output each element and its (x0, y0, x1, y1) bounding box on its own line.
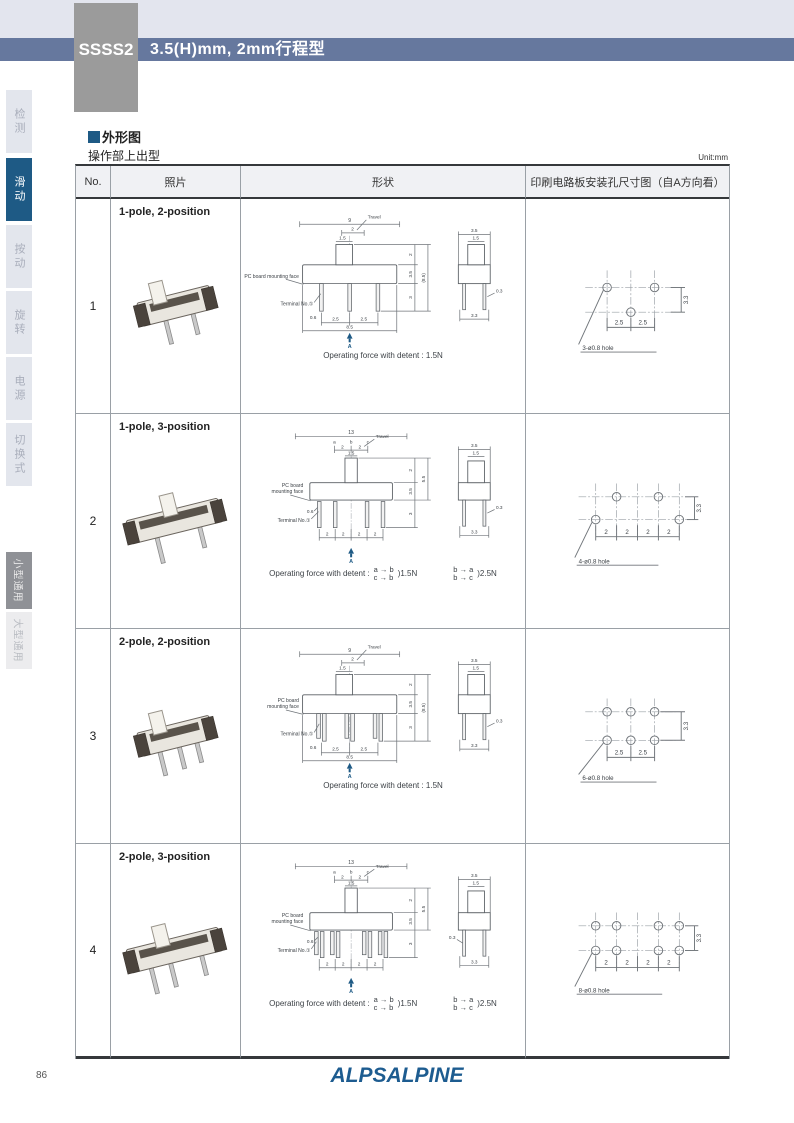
row2-shape-cell: 13 a b c 2 2 Travel 1.5 2 3.5 (241, 414, 526, 629)
row1-photo (121, 260, 231, 365)
dim-pitch2: 2.5 (361, 747, 368, 752)
dim-knob-height: 2 (408, 899, 413, 902)
dim-travel: 2 (351, 227, 354, 232)
model-name: SSSS2 (79, 40, 134, 60)
row2-dimension-drawing: 13 a b c 2 2 Travel 1.5 2 3.5 (241, 426, 525, 564)
row1-operating-force: Operating force with detent : 1.5N (323, 351, 443, 360)
row3-shape-cell: 9 2 Travel 1.5 2 3.5 3 (8.5) 0.6 (241, 629, 526, 844)
row4-type-label: 2-pole, 3-position (119, 851, 210, 863)
dim-terminal-width: 0.6 (310, 315, 317, 320)
dim-pitch-3: 2 (358, 532, 361, 537)
side-width: 3.5 (471, 443, 478, 448)
pos-b: b (350, 870, 353, 875)
hole-dim-vertical: 3.3 (696, 503, 703, 512)
dim-pitch-4: 2 (374, 532, 377, 537)
dim-pitch-1: 2 (326, 962, 329, 967)
a-direction-marker: A (348, 344, 352, 349)
section-heading: 外形图 (88, 127, 141, 146)
row4-dimension-drawing: 13 a b c 2 2 Travel 1.5 2 3.5 (241, 856, 525, 994)
terminal-label: Terminal No.① (280, 731, 313, 737)
pos-b: b (350, 440, 353, 445)
dim-overall-height: (8.5) (421, 703, 426, 713)
seg2: 2 (359, 875, 362, 880)
row3-holes-cell: 3.3 2.5 2.5 6-ø0.8 hole (526, 629, 729, 844)
side-terminal-thickness: 0.3 (496, 505, 503, 510)
hole-dim-2: 2.5 (638, 750, 647, 757)
row1-photo-cell: 1-pole, 2-position (111, 199, 241, 414)
dim-pitch-3: 2 (358, 962, 361, 967)
dim-travel: 2 (351, 657, 354, 662)
hole-pitch-3: 2 (646, 960, 650, 967)
side-width: 3.5 (471, 658, 478, 663)
a-direction-marker: A (349, 559, 353, 564)
hole-dim-vertical: 3.3 (682, 295, 689, 304)
dim-overall-height: (8.5) (421, 273, 426, 283)
hole-dim-2: 2.5 (638, 320, 647, 327)
side-knob-width: 1.5 (472, 665, 479, 670)
alpsalpine-logo: ALPSALPINE (0, 1064, 794, 1088)
row1-no: 1 (76, 199, 111, 414)
operating-force-prefix: Operating force with detent : (269, 999, 370, 1008)
row3-operating-force: Operating force with detent : 1.5N (323, 781, 443, 790)
heading-square-icon (88, 131, 100, 143)
sidebar-tab-daxing: 大型通用 (6, 612, 32, 669)
travel-label: Travel (376, 434, 389, 439)
sidebar-tab-andong: 按动 (6, 225, 32, 288)
col-header-shape: 形状 (241, 166, 526, 199)
row1-type-label: 1-pole, 2-position (119, 206, 210, 218)
slide-switch-photo (121, 260, 231, 360)
dim-pitch-4: 2 (374, 962, 377, 967)
dim-terminal-length: 3 (408, 512, 413, 515)
row2-operating-force: Operating force with detent : a → b c → … (269, 566, 497, 582)
hole-dim-1: 2.5 (614, 320, 623, 327)
row1-holes-cell: 3.3 2.5 2.5 3-ø0.8 hole (526, 199, 729, 414)
row4-shape-cell: 13 a b c 2 2 Travel 1.5 2 3.5 (241, 844, 526, 1059)
dim-terminal-length: 3 (408, 296, 413, 299)
section-subheading: 操作部上出型 (88, 147, 160, 164)
row3-photo-cell: 2-pole, 2-position (111, 629, 241, 844)
pos-a: a (333, 440, 336, 445)
side-width: 3.5 (471, 873, 478, 878)
hole-dim-vertical: 3.3 (682, 721, 689, 730)
row3-no: 3 (76, 629, 111, 844)
row2-hole-diagram: 3.3 2 2 2 2 4-ø0.8 hole (533, 466, 723, 576)
catalog-page: SSSS2 3.5(H)mm, 2mm行程型 检测 滑动 按动 旋转 电源 切换… (0, 0, 794, 1123)
dim-front-width: 9 (348, 648, 351, 654)
side-width: 3.5 (471, 228, 478, 233)
dim-terminal-width: 0.6 (310, 745, 317, 750)
sidebar-tab-dianyuan: 电源 (6, 357, 32, 420)
row4-hole-diagram: 3.3 2 2 2 2 8-ø0.8 hole (533, 895, 723, 1005)
row4-no: 4 (76, 844, 111, 1059)
travel-label: Travel (368, 214, 381, 219)
dim-knob-height: 2 (408, 253, 413, 256)
row4-photo (118, 904, 234, 1009)
terminal-label: Terminal No.① (278, 948, 311, 954)
outline-table: No. 照片 形状 印刷电路板安装孔尺寸图（自A方向看） 1 1-pole, 2… (75, 164, 730, 1059)
dim-body-height: 3.5 (408, 488, 413, 495)
side-base-width: 3.3 (471, 959, 478, 964)
sidebar-tab-xiaoxing: 小型通用 (6, 552, 32, 609)
dim-front-width: 13 (348, 860, 354, 866)
side-base-width: 3.3 (471, 743, 478, 748)
sidebar-tab-daxing-label: 大型通用 (12, 619, 27, 663)
hole-count-label: 3-ø0.8 hole (582, 345, 614, 352)
terminal-label: Terminal No.① (278, 518, 311, 524)
side-terminal-thickness: 0.3 (496, 718, 503, 723)
seg1: 2 (341, 445, 344, 450)
side-terminal-thickness: 0.3 (496, 288, 503, 293)
row1-shape-cell: 9 2 Travel 1.5 2 3.5 3 (8.5 (241, 199, 526, 414)
dim-front-width: 13 (348, 430, 354, 436)
dim-terminal-width: 0.6 (307, 939, 314, 944)
col-header-pcb: 印刷电路板安装孔尺寸图（自A方向看） (526, 166, 729, 199)
travel-label: Travel (376, 864, 389, 869)
seg1: 2 (341, 875, 344, 880)
operating-force-text: Operating force with detent : 1.5N (323, 351, 443, 360)
dim-body-height: 3.5 (408, 271, 413, 278)
dim-body-height: 3.5 (408, 918, 413, 925)
slide-switch-photo (118, 475, 234, 575)
row4-operating-force: Operating force with detent : a → b c → … (269, 996, 497, 1012)
dim-pitch1: 2.5 (332, 747, 339, 752)
sidebar-tab-xuanzhuan: 旋转 (6, 291, 32, 354)
row2-type-label: 1-pole, 3-position (119, 421, 210, 433)
force-pair-2: b → a b → c (453, 996, 473, 1012)
dim-pitch-1: 2 (326, 532, 329, 537)
side-knob-width: 1.5 (472, 235, 479, 240)
a-direction-marker: A (349, 989, 353, 994)
slide-switch-photo (121, 690, 231, 790)
row1-dimension-drawing: 9 2 Travel 1.5 2 3.5 3 (8.5 (241, 211, 525, 349)
pcb-face-label-2: mounting face (271, 489, 303, 495)
force-value-2: )2.5N (477, 569, 497, 578)
pcb-face-label: PC board mounting face (244, 274, 299, 280)
dim-knob-width: 1.5 (339, 665, 346, 670)
row3-type-label: 2-pole, 2-position (119, 636, 210, 648)
dim-knob-height: 2 (408, 469, 413, 472)
dim-knob-height: 2 (408, 683, 413, 686)
row1-hole-diagram: 3.3 2.5 2.5 3-ø0.8 hole (533, 251, 723, 361)
dim-pitch2: 2.5 (361, 317, 368, 322)
row4-holes-cell: 3.3 2 2 2 2 8-ø0.8 hole (526, 844, 729, 1059)
dim-terminal-length: 3 (408, 942, 413, 945)
operating-force-text: Operating force with detent : 1.5N (323, 781, 443, 790)
hole-pitch-2: 2 (625, 960, 629, 967)
hole-count-label: 8-ø0.8 hole (578, 987, 610, 994)
pcb-face-label-2: mounting face (267, 704, 299, 710)
dim-body-height: 3.5 (408, 701, 413, 708)
force-value-2: )2.5N (477, 999, 497, 1008)
dim-terminal-width: 0.6 (307, 509, 314, 514)
sidebar-tab-huadong: 滑动 (6, 158, 32, 221)
hole-pitch-4: 2 (667, 529, 671, 536)
hole-count-label: 6-ø0.8 hole (582, 775, 614, 782)
dim-overall-height: 5.5 (421, 475, 426, 482)
sidebar-tab-xiaoxing-label: 小型通用 (12, 559, 27, 603)
side-knob-width: 1.5 (472, 450, 479, 455)
col-header-photo: 照片 (111, 166, 241, 199)
seg2: 2 (359, 445, 362, 450)
row3-hole-diagram: 3.3 2.5 2.5 6-ø0.8 hole (533, 681, 723, 791)
travel-label: Travel (368, 644, 381, 649)
row2-holes-cell: 3.3 2 2 2 2 4-ø0.8 hole (526, 414, 729, 629)
dim-pitch1: 2.5 (332, 317, 339, 322)
hole-pitch-2: 2 (625, 529, 629, 536)
col-header-no: No. (76, 166, 111, 199)
dim-pitch-2: 2 (342, 962, 345, 967)
dim-base-width: 8.5 (346, 755, 353, 760)
side-base-width: 3.3 (471, 313, 478, 318)
dim-front-width: 9 (348, 218, 351, 224)
page-title: 3.5(H)mm, 2mm行程型 (150, 38, 325, 61)
sidebar-tab-jiance: 检测 (6, 90, 32, 153)
side-knob-width: 1.5 (472, 880, 479, 885)
force-value-1: )1.5N (398, 569, 418, 578)
hole-pitch-4: 2 (667, 960, 671, 967)
unit-label: Unit:mm (528, 153, 728, 162)
dim-pitch-2: 2 (342, 532, 345, 537)
force-pair-1: a → b c → b (374, 996, 394, 1012)
hole-pitch-3: 2 (646, 529, 650, 536)
hole-pitch-1: 2 (604, 960, 608, 967)
slide-switch-photo (118, 904, 234, 1004)
pos-a: a (333, 870, 336, 875)
dim-knob-width: 1.5 (339, 235, 346, 240)
row2-no: 2 (76, 414, 111, 629)
force-pair-2: b → a b → c (453, 566, 473, 582)
row3-photo (121, 690, 231, 795)
operating-force-prefix: Operating force with detent : (269, 569, 370, 578)
row2-photo (118, 475, 234, 580)
dim-overall-height: 5.5 (421, 905, 426, 912)
side-base-width: 3.3 (471, 529, 478, 534)
row3-dimension-drawing: 9 2 Travel 1.5 2 3.5 3 (8.5) 0.6 (241, 641, 525, 779)
force-value-1: )1.5N (398, 999, 418, 1008)
section-heading-text: 外形图 (102, 130, 141, 145)
dim-terminal-length: 3 (408, 726, 413, 729)
force-pair-1: a → b c → b (374, 566, 394, 582)
model-box: SSSS2 (74, 3, 138, 112)
row2-photo-cell: 1-pole, 3-position (111, 414, 241, 629)
side-terminal-thickness: 0.3 (449, 935, 456, 940)
hole-pitch-1: 2 (604, 529, 608, 536)
sidebar-tab-qiehuanshi: 切换式 (6, 423, 32, 486)
hole-dim-1: 2.5 (614, 750, 623, 757)
terminal-label: Terminal No.① (280, 301, 313, 307)
dim-base-width: 8.5 (346, 325, 353, 330)
row4-photo-cell: 2-pole, 3-position (111, 844, 241, 1059)
pcb-face-label-2: mounting face (271, 919, 303, 925)
hole-dim-vertical: 3.3 (696, 933, 703, 942)
a-direction-marker: A (348, 774, 352, 779)
hole-count-label: 4-ø0.8 hole (578, 558, 610, 565)
